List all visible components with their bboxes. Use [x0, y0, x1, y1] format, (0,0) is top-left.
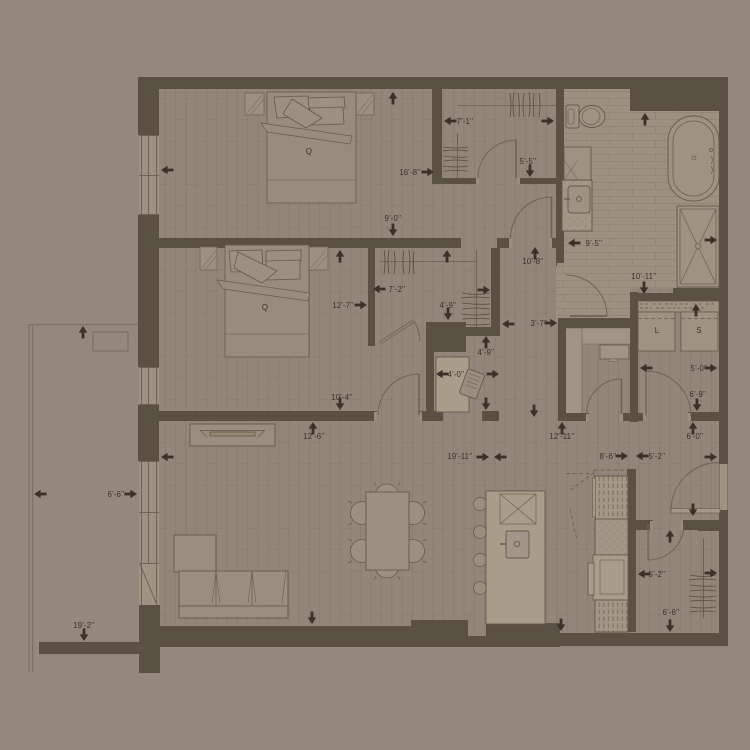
svg-text:6’-0’’: 6’-0’’: [687, 432, 704, 441]
svg-text:6’-6’’: 6’-6’’: [108, 490, 125, 499]
svg-text:10’-11’’: 10’-11’’: [631, 272, 656, 281]
svg-text:5’-0’’: 5’-0’’: [691, 364, 708, 373]
svg-text:19’-11’’: 19’-11’’: [447, 452, 472, 461]
svg-text:5’-2’’: 5’-2’’: [649, 570, 666, 579]
svg-text:16’-8’’: 16’-8’’: [399, 168, 421, 177]
svg-text:12’-7’’: 12’-7’’: [332, 301, 354, 310]
svg-text:5’-5’’: 5’-5’’: [520, 157, 537, 166]
svg-text:6’-6’’: 6’-6’’: [663, 608, 680, 617]
svg-text:Q: Q: [262, 303, 268, 312]
svg-text:9’-0’’: 9’-0’’: [385, 214, 402, 223]
svg-text:6’-9’’: 6’-9’’: [690, 390, 707, 399]
svg-text:7’-2’’: 7’-2’’: [389, 285, 406, 294]
svg-text:Q: Q: [306, 147, 312, 156]
svg-text:L: L: [655, 326, 660, 335]
svg-text:5’-2’’: 5’-2’’: [649, 452, 666, 461]
svg-text:4’-9’’: 4’-9’’: [440, 301, 457, 310]
svg-text:9’-5’’: 9’-5’’: [586, 239, 603, 248]
svg-text:8’-6’’: 8’-6’’: [600, 452, 617, 461]
svg-text:10’-4’’: 10’-4’’: [331, 393, 353, 402]
svg-text:12’-11’’: 12’-11’’: [549, 432, 574, 441]
svg-text:4’-9’’: 4’-9’’: [478, 348, 495, 357]
svg-text:12’-6’’: 12’-6’’: [303, 432, 325, 441]
svg-text:7’-1’’: 7’-1’’: [457, 117, 474, 126]
svg-text:S: S: [696, 326, 701, 335]
svg-text:10’-8’’: 10’-8’’: [522, 257, 544, 266]
svg-text:3’-7’’: 3’-7’’: [531, 319, 548, 328]
svg-text:19’-2’’: 19’-2’’: [73, 621, 95, 630]
svg-text:4’-0’’: 4’-0’’: [448, 370, 465, 379]
